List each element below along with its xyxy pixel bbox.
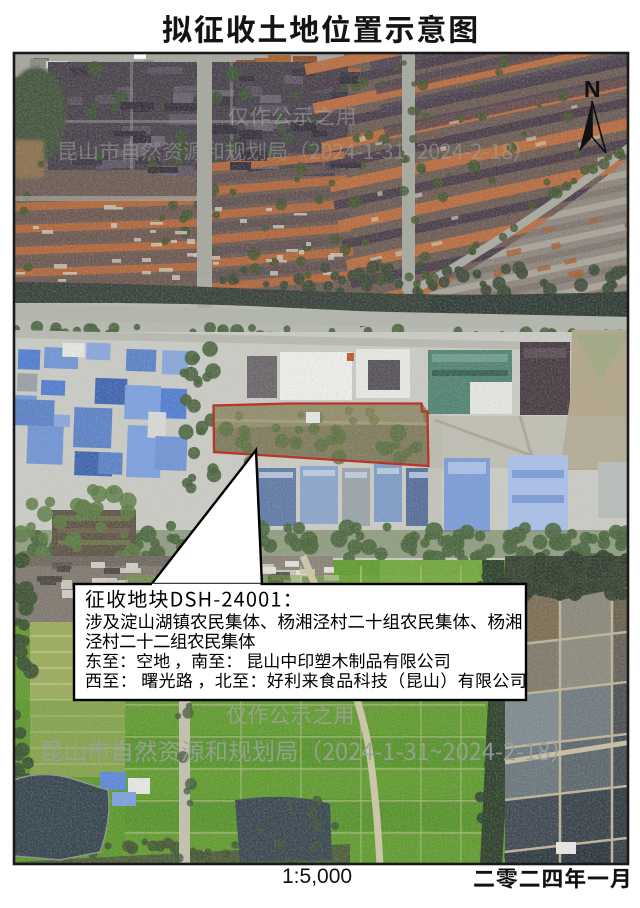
- svg-text:N: N: [584, 76, 601, 102]
- svg-text:1:5,000: 1:5,000: [282, 865, 352, 888]
